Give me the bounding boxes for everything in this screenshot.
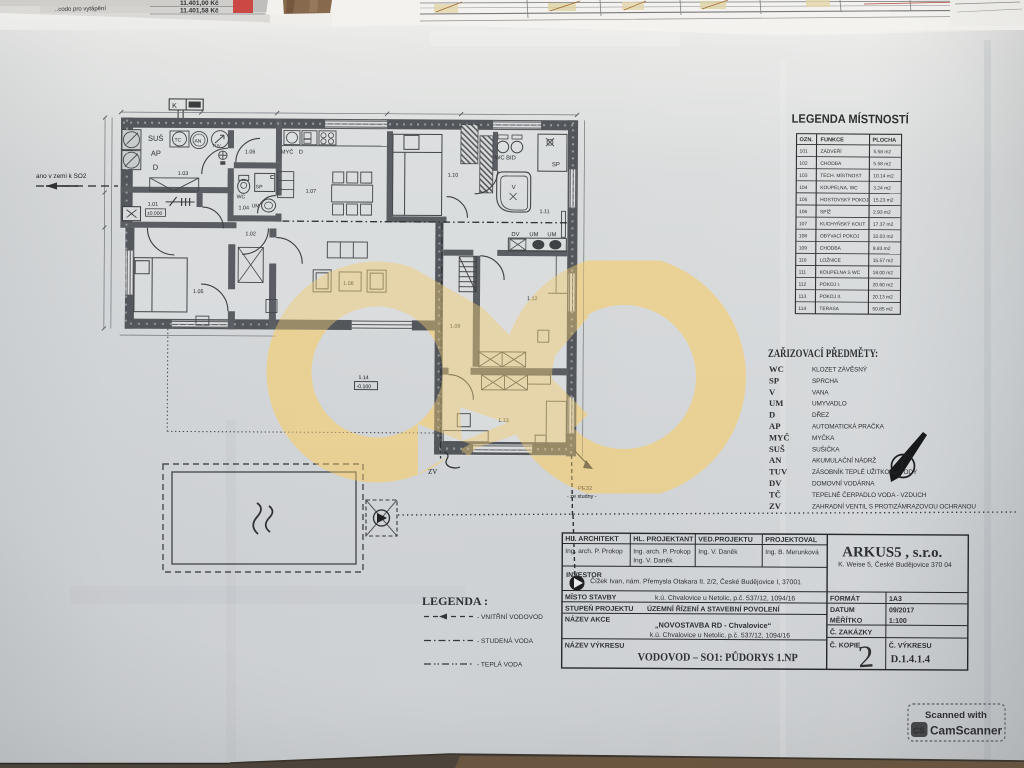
svg-text:CamScanner: CamScanner: [930, 724, 1003, 738]
svg-text:11.401,00 Kč: 11.401,00 Kč: [180, 0, 219, 7]
svg-text:15.23 m2: 15.23 m2: [873, 198, 894, 204]
svg-text:MÍSTO STAVBY: MÍSTO STAVBY: [565, 592, 617, 601]
svg-text:1:100: 1:100: [889, 618, 907, 625]
svg-text:108: 108: [799, 233, 807, 239]
svg-text:V: V: [769, 387, 776, 397]
svg-text:VED.PROJEKTU: VED.PROJEKTU: [698, 536, 753, 543]
svg-text:MYČ: MYČ: [769, 432, 790, 442]
svg-text:Ing. V. Daněk: Ing. V. Daněk: [698, 549, 738, 556]
svg-text:ZV: ZV: [769, 501, 782, 511]
svg-text:Ing. B. Merunková: Ing. B. Merunková: [765, 549, 819, 556]
svg-text:KOUPELNA S WC: KOUPELNA S WC: [820, 270, 861, 276]
svg-text:20.60 m2: 20.60 m2: [873, 282, 894, 288]
svg-text:SPRCHA: SPRCHA: [812, 378, 839, 385]
svg-text:3.24 m2: 3.24 m2: [873, 185, 891, 191]
svg-text:15.57 m2: 15.57 m2: [873, 258, 894, 264]
svg-text:5.58 m2: 5.58 m2: [873, 161, 891, 167]
svg-text:5.58 m2: 5.58 m2: [873, 149, 891, 155]
svg-text:FORMÁT: FORMÁT: [830, 594, 861, 603]
svg-text:AUTOMATICKÁ PRAČKA: AUTOMATICKÁ PRAČKA: [812, 422, 885, 431]
svg-text:111: 111: [799, 270, 807, 276]
svg-text:UMYVADLO: UMYVADLO: [812, 401, 847, 408]
svg-text:HL. PROJEKTANT: HL. PROJEKTANT: [633, 536, 694, 543]
svg-text:103: 103: [799, 173, 807, 179]
svg-text:- TEPLÁ VODA: - TEPLÁ VODA: [477, 660, 523, 669]
svg-text:„NOVOSTAVBA RD - Chvalovice“: „NOVOSTAVBA RD - Chvalovice“: [655, 620, 772, 630]
svg-text:ZAHRADNÍ VENTIL S PROTIZÁMRAZO: ZAHRADNÍ VENTIL S PROTIZÁMRAZOVOU OCHRAN…: [812, 501, 976, 510]
svg-text:STUPEŇ PROJEKTU: STUPEŇ PROJEKTU: [565, 604, 634, 613]
svg-text:ARKUS5 , s.r.o.: ARKUS5 , s.r.o.: [842, 544, 942, 561]
svg-text:KOUPELNA, WC: KOUPELNA, WC: [820, 185, 858, 191]
svg-text:11.401,58 Kč: 11.401,58 Kč: [180, 8, 219, 15]
svg-text:AKUMULAČNÍ NÁDRŽ: AKUMULAČNÍ NÁDRŽ: [812, 456, 876, 465]
svg-text:CHODBA: CHODBA: [820, 161, 842, 167]
svg-text:POKOJ I.: POKOJ I.: [820, 282, 841, 288]
svg-text:D.1.4.1.4: D.1.4.1.4: [891, 654, 931, 665]
svg-text:WC: WC: [769, 364, 784, 374]
svg-text:102: 102: [799, 161, 807, 167]
svg-text:114: 114: [798, 306, 806, 312]
svg-text:109: 109: [799, 245, 807, 251]
svg-text:- STUDENÁ VODA: - STUDENÁ VODA: [477, 636, 534, 645]
svg-text:VANA: VANA: [812, 389, 829, 396]
svg-text:D: D: [769, 410, 775, 420]
svg-text:SUŠIČKA: SUŠIČKA: [812, 444, 840, 453]
svg-text:9.83 m2: 9.83 m2: [873, 246, 891, 252]
svg-text:MYČKA: MYČKA: [812, 433, 835, 442]
svg-text:UM: UM: [769, 398, 783, 408]
svg-text:101: 101: [799, 149, 807, 155]
svg-text:TČ: TČ: [769, 489, 781, 499]
svg-text:112: 112: [799, 282, 807, 288]
svg-text:20.13 m2: 20.13 m2: [872, 294, 893, 300]
svg-text:SUŠ: SUŠ: [769, 444, 785, 454]
svg-text:LEGENDA MÍSTNOSTÍ: LEGENDA MÍSTNOSTÍ: [792, 111, 910, 127]
svg-text:CHODBA: CHODBA: [820, 246, 842, 252]
svg-text:DOMOVNÍ VODÁRNA: DOMOVNÍ VODÁRNA: [812, 479, 875, 488]
svg-text:VODOVOD – SO1: PŮDORYS 1.NP: VODOVOD – SO1: PŮDORYS 1.NP: [638, 650, 798, 664]
svg-text:FUNKCE: FUNKCE: [821, 137, 845, 143]
svg-text:LEGENDA :: LEGENDA :: [422, 596, 488, 608]
svg-text:..codo pro vytápění: ..codo pro vytápění: [55, 6, 106, 13]
svg-text:10.14 m2: 10.14 m2: [873, 173, 894, 179]
svg-text:DATUM: DATUM: [830, 607, 855, 614]
svg-text:DŘEZ: DŘEZ: [812, 410, 829, 419]
svg-text:k.ú. Chvalovice u Netolic, p.č: k.ú. Chvalovice u Netolic, p.č. 537/12, …: [655, 595, 795, 603]
svg-text:Ing. V. Daněk: Ing. V. Daněk: [633, 557, 673, 564]
svg-text:09/2017: 09/2017: [889, 607, 914, 614]
svg-text:CS: CS: [913, 726, 925, 736]
svg-text:MĚŘÍTKO: MĚŘÍTKO: [830, 616, 863, 625]
svg-text:AN: AN: [769, 455, 782, 465]
svg-text:104: 104: [799, 185, 807, 191]
svg-text:NÁZEV AKCE: NÁZEV AKCE: [565, 614, 611, 623]
svg-text:POKOJ II.: POKOJ II.: [819, 294, 841, 300]
svg-text:Ing. arch. P. Prokop: Ing. arch. P. Prokop: [633, 548, 691, 555]
svg-text:SP: SP: [769, 375, 779, 385]
svg-text:110: 110: [799, 258, 807, 264]
svg-text:PLOCHA: PLOCHA: [873, 138, 897, 144]
svg-text:105: 105: [799, 197, 807, 203]
svg-text:50.85 m2: 50.85 m2: [872, 306, 893, 312]
svg-text:32.03 m2: 32.03 m2: [873, 234, 894, 240]
svg-text:k.ú. Chvalovice u Netolic, p.č: k.ú. Chvalovice u Netolic, p.č. 537/12, …: [650, 632, 790, 640]
svg-text:ZAŘIZOVACÍ PŘEDMĚTY:: ZAŘIZOVACÍ PŘEDMĚTY:: [768, 348, 878, 360]
svg-text:TUV: TUV: [769, 467, 788, 477]
svg-text:TEPELNÉ ČERPADLO VODA - VZDUCH: TEPELNÉ ČERPADLO VODA - VZDUCH: [812, 490, 927, 499]
svg-text:DV: DV: [769, 478, 782, 488]
svg-text:113: 113: [798, 294, 806, 300]
svg-text:PROJEKTOVAL: PROJEKTOVAL: [765, 537, 818, 544]
svg-text:KLOZET ZÁVĚSNÝ: KLOZET ZÁVĚSNÝ: [812, 365, 868, 374]
svg-text:18.00 m2: 18.00 m2: [873, 270, 894, 276]
svg-text:NÁZEV VÝKRESU: NÁZEV VÝKRESU: [565, 640, 625, 649]
svg-text:2.93 m2: 2.93 m2: [873, 210, 891, 216]
svg-text:Scanned with: Scanned with: [925, 710, 987, 721]
svg-text:OZN.: OZN.: [800, 137, 814, 143]
svg-text:Č. ZAKÁZKY: Č. ZAKÁZKY: [830, 627, 873, 636]
svg-text:107: 107: [799, 221, 807, 227]
svg-text:1A3: 1A3: [889, 596, 902, 603]
svg-text:2: 2: [857, 638, 875, 674]
svg-text:- VNITŘNÍ VODOVOD: - VNITŘNÍ VODOVOD: [477, 612, 543, 621]
svg-text:Č. VÝKRESU: Č. VÝKRESU: [889, 641, 932, 650]
svg-text:AP: AP: [769, 421, 780, 431]
svg-text:TERASA: TERASA: [819, 306, 839, 312]
svg-text:106: 106: [799, 209, 807, 215]
svg-text:17.37 m2: 17.37 m2: [873, 222, 894, 228]
